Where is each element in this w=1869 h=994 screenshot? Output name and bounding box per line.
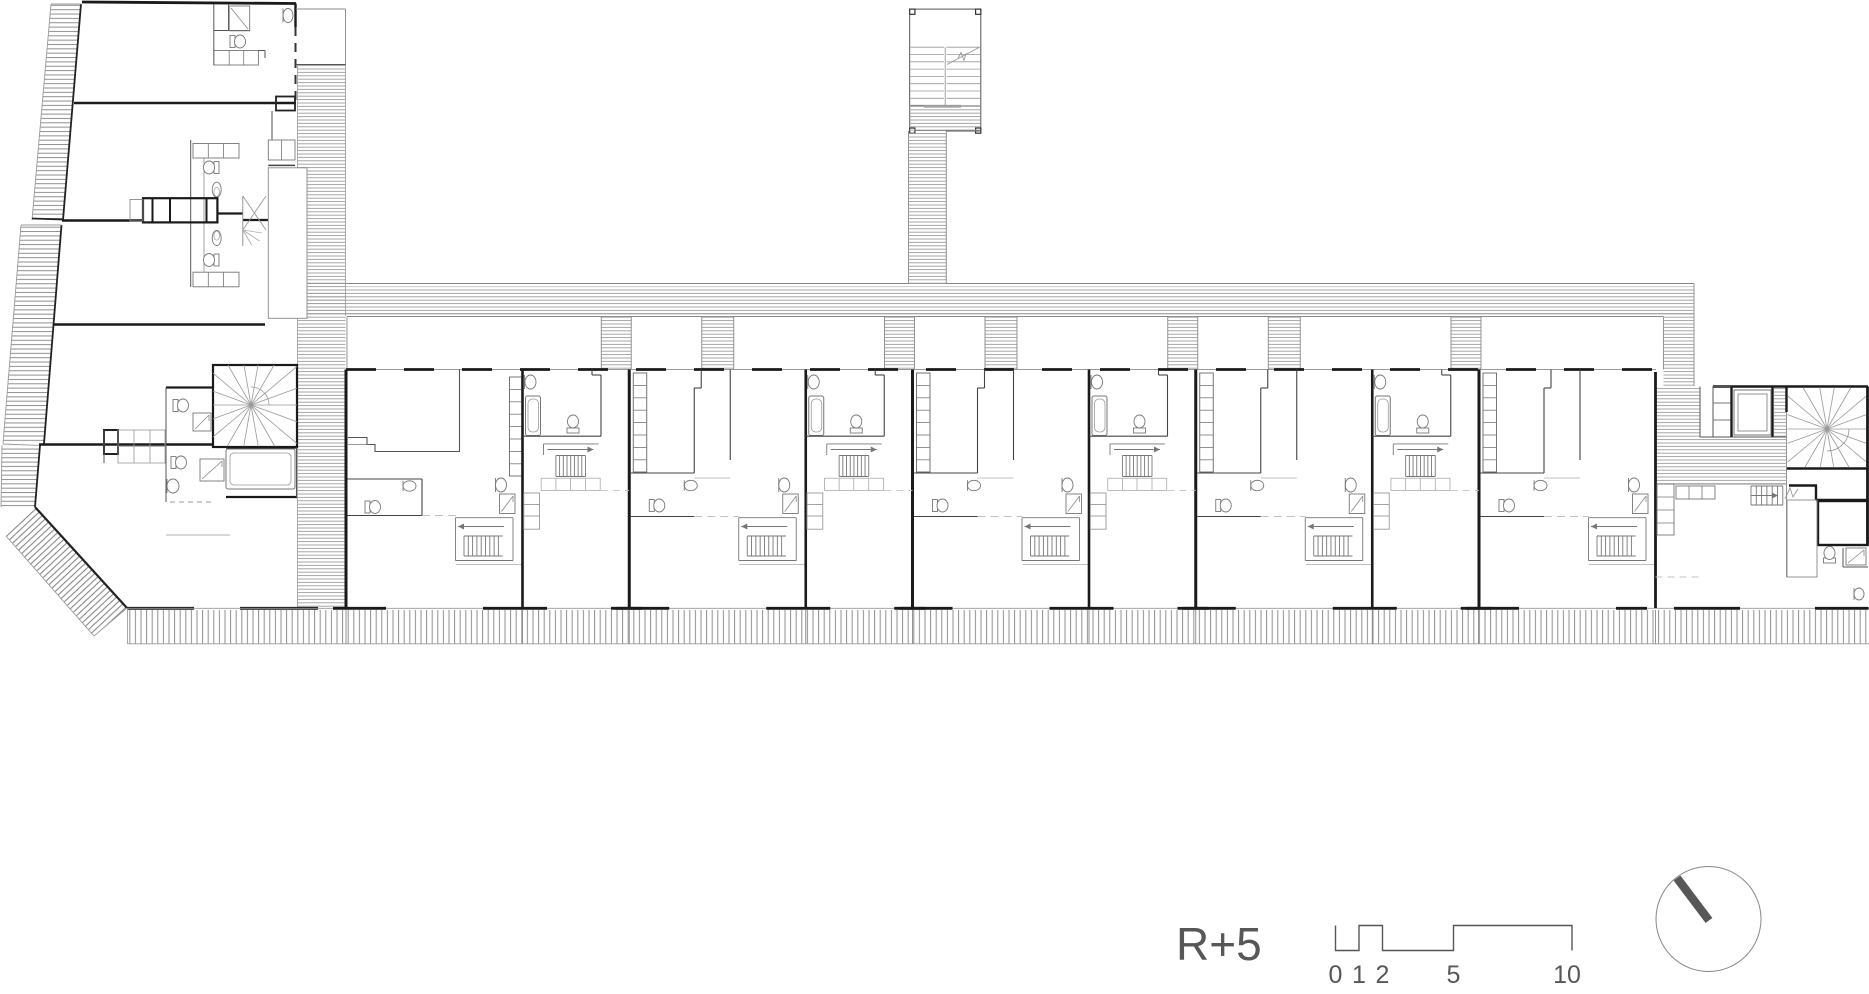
svg-text:1: 1: [1352, 961, 1366, 989]
svg-text:0: 0: [1329, 961, 1343, 989]
svg-text:10: 10: [1553, 961, 1581, 989]
svg-text:2: 2: [1376, 961, 1390, 989]
svg-text:5: 5: [1447, 961, 1461, 989]
svg-text:R+5: R+5: [1176, 918, 1262, 970]
